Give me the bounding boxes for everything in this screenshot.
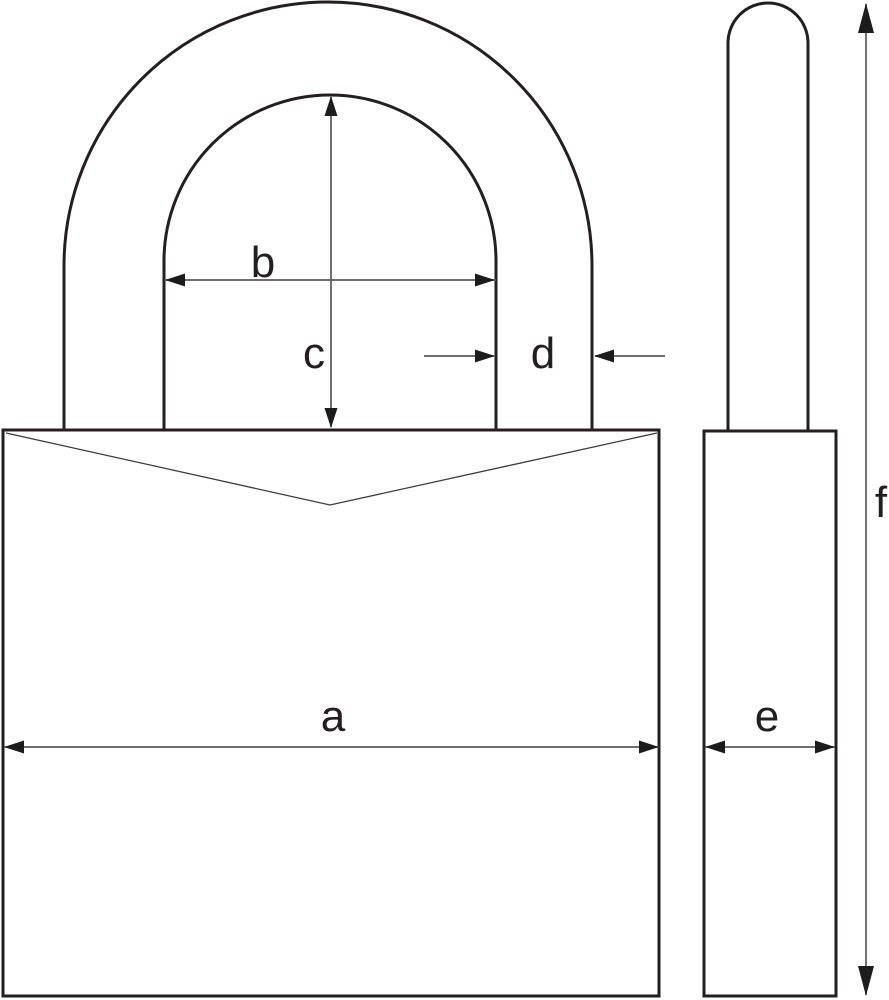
diagram-svg: b c d a e f [0,0,889,1000]
dim-f-label: f [875,478,888,527]
dim-e-arrowhead-right [815,741,835,754]
dim-b-arrowhead-left [165,274,185,287]
dim-a-arrowhead-right [639,741,659,754]
dim-d-arrowhead-right [594,350,614,363]
dim-e-arrowhead-left [705,741,725,754]
dim-b-label: b [251,238,275,287]
dim-d-arrowhead-left [475,350,495,363]
front-body-bevel-line [6,433,657,505]
dim-c-label: c [303,329,325,378]
dim-e-label: e [755,692,779,741]
dim-a-arrowhead-left [4,741,24,754]
side-shackle-outline [728,3,808,431]
dim-f-arrowhead-bottom [858,966,874,996]
dim-c-arrowhead-top [325,96,338,116]
shackle-outer-curve [64,2,592,430]
dim-b-arrowhead-right [475,274,495,287]
dim-d-label: d [531,329,555,378]
dim-a-label: a [321,692,346,741]
padlock-dimension-diagram: b c d a e f [0,0,889,1000]
shackle-inner-curve [164,95,496,430]
dim-c-arrowhead-bottom [325,408,338,428]
dim-f-arrowhead-top [858,3,874,33]
